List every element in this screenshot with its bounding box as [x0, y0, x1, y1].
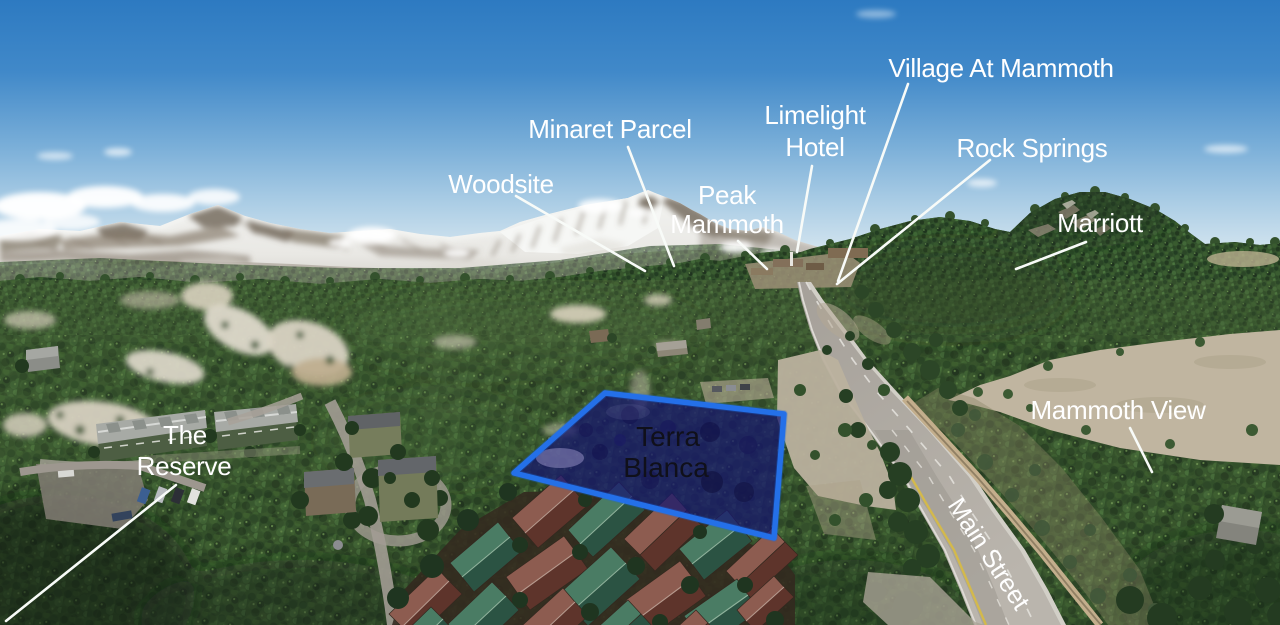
svg-text:Minaret Parcel: Minaret Parcel	[528, 114, 691, 144]
svg-text:Terra: Terra	[636, 421, 700, 452]
svg-text:Marriott: Marriott	[1057, 208, 1144, 238]
svg-text:Reserve: Reserve	[137, 451, 232, 481]
svg-text:Blanca: Blanca	[623, 452, 709, 483]
svg-text:Woodsite: Woodsite	[448, 169, 554, 199]
svg-text:Village At Mammoth: Village At Mammoth	[888, 53, 1113, 83]
svg-text:Limelight: Limelight	[764, 100, 866, 130]
svg-text:Rock Springs: Rock Springs	[956, 133, 1107, 163]
svg-text:The: The	[163, 420, 207, 450]
svg-text:Mammoth View: Mammoth View	[1030, 395, 1206, 425]
svg-text:Peak: Peak	[698, 180, 757, 210]
svg-text:Mammoth: Mammoth	[670, 209, 783, 239]
svg-text:Hotel: Hotel	[785, 132, 844, 162]
